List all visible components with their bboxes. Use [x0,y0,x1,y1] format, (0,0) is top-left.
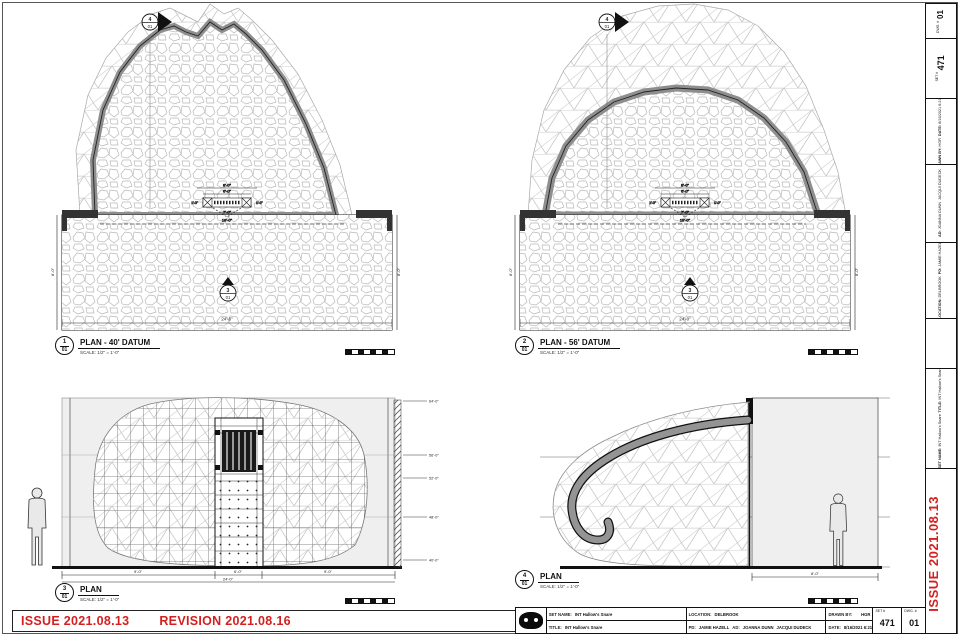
svg-text:01: 01 [148,24,153,29]
view-bubble-1: 1 01 [55,336,74,355]
view-title: PLAN - 56' DATUM [538,336,620,349]
plan-40-datum-drawing: 8'-0" 6'-0" 1'-0" 1'-0" 7'-0" 18'-0" 3 0… [45,5,405,350]
set-number-cell: SET # 471 [872,608,901,633]
graphic-scale-bar [345,598,395,604]
view-scale: SCALE: 1/2" = 1'-0" [538,583,579,589]
view-bubble-3: 3 01 [55,583,74,602]
ground-line [52,566,402,569]
view-bubble-4: 4 01 [515,570,534,589]
dwg-number-cell: DWG. # 01 [901,608,926,633]
title-value: INT Hallow's Snare [565,625,603,630]
view-scale: SCALE: 1/2" = 1'-0" [78,596,119,602]
svg-text:56'-0": 56'-0" [429,454,439,458]
svg-text:9'-0": 9'-0" [324,569,333,574]
view-label-1: 1 01 PLAN - 40' DATUM SCALE: 1/2" = 1'-0… [55,336,160,355]
dim-door-mid: 6'-0" [223,189,232,194]
dim-door-side-r: 1'-0" [714,201,722,205]
dim-door-side-r: 1'-0" [256,201,264,205]
svg-text:4: 4 [606,17,609,23]
side-dwg-cell: DWG. # 01 [926,4,956,39]
pd-value: JAMIE HAZELL [699,625,729,630]
dim-left: 8'-0" [508,267,513,276]
drawn-by-cell: DRAWN BY: HGR DATE: 8/16/2021 6:21:13 [825,608,872,633]
view-bubble-2: 2 01 [515,336,534,355]
view-label-3: 3 01 PLAN SCALE: 1/2" = 1'-0" [55,583,119,602]
location-cell: LOCATION: DELBROOK PD: JAMIE HAZELL AD: … [686,608,826,633]
svg-text:3: 3 [689,288,692,294]
title-block-side: DWG. # 01 SET # 471 DRAWN BY: HGR DATE: … [925,3,957,634]
title-block-bottom: SET NAME: INT Hallow's Snare TITLE: INT … [515,607,927,634]
drawn-by-value: HGR [861,612,870,617]
view-scale: SCALE: 1/2" = 1'-0" [78,349,160,355]
svg-text:4: 4 [149,17,152,23]
side-issue-cell: ISSUE 2021.08.13 [926,468,956,635]
dims-elevation: 9'-0" 6'-0" 9'-0" 24'-0" [62,569,395,582]
set-name-value: INT Hallow's Snare [575,612,613,617]
dim-overall: 24'-0" [221,317,233,322]
svg-text:3: 3 [227,288,230,294]
dims-section: 8'-0" [752,571,878,581]
gate-tower [215,418,263,568]
dim-mid: 18'-0" [222,218,233,223]
side-empty-cell [926,318,956,369]
issue-revision-bar: ISSUE 2021.08.13 REVISION 2021.08.16 [12,610,520,632]
revision-text: REVISION 2021.08.16 [159,614,290,628]
view-title: PLAN [538,570,579,583]
svg-text:24'-0": 24'-0" [223,577,234,582]
room-interior [746,398,878,568]
dim-left: 8'-0" [50,267,55,276]
svg-text:01: 01 [688,295,693,300]
view-scale: SCALE: 1/2" = 1'-0" [538,349,620,355]
date-value: 8/16/2021 6:21:13 [844,625,873,630]
svg-text:52'-0": 52'-0" [429,477,439,481]
view-label-4: 4 01 PLAN SCALE: 1/2" = 1'-0" [515,570,579,589]
set-number-value: 471 [873,613,901,633]
dim-door-low: 7'-0" [223,210,232,215]
set-name-cell: SET NAME: INT Hallow's Snare TITLE: INT … [546,608,686,633]
side-section-drawing: 8'-0" [505,388,905,592]
side-set-cell: SET # 471 [926,38,956,99]
dim-door-low: 7'-0" [681,210,690,215]
dim-overall: 24'-0" [679,317,691,322]
side-drawn-cell: DRAWN BY: HGR DATE: 8/16/2021 6:21:13 [926,98,956,165]
dim-mid: 18'-0" [680,218,691,223]
svg-text:64'-0": 64'-0" [429,400,439,404]
rock-profile [553,402,750,566]
svg-text:8'-0": 8'-0" [811,571,820,576]
dwg-number-value: 01 [902,613,926,633]
front-elevation-drawing: 64'-0" 56'-0" 52'-0" 48'-0" 40'-0" 9'-0"… [15,390,445,592]
issue-text: ISSUE 2021.08.13 [21,614,129,628]
plan-56-datum-drawing: 8'-0" 6'-0" 1'-0" 1'-0" 7'-0" 18'-0" 3 0… [505,5,875,350]
dim-door-top: 8'-0" [223,183,232,188]
side-dwg-value: 01 [936,10,947,19]
elevation-datums: 64'-0" 56'-0" 52'-0" 48'-0" 40'-0" [403,400,439,563]
human-figure-left [28,488,46,565]
dim-door-side-l: 1'-0" [191,201,199,205]
view-title: PLAN [78,583,119,596]
svg-text:01: 01 [226,295,231,300]
ad1-value: JOANNA DUNN [743,625,774,630]
svg-text:6'-0": 6'-0" [234,569,243,574]
rock-mound-plan40 [76,4,352,215]
side-issue-text: ISSUE 2021.08.13 [926,496,941,612]
ground-line [560,566,882,569]
svg-text:9'-0": 9'-0" [134,569,143,574]
logo-cell [516,608,546,633]
svg-text:40'-0": 40'-0" [429,559,439,563]
dim-right: 8'-0" [854,267,859,276]
svg-text:48'-0": 48'-0" [429,516,439,520]
side-name-cell: SET NAME: INT Hallow's Snare TITLE: INT … [926,368,956,469]
svg-text:01: 01 [605,24,610,29]
view-title: PLAN - 40' DATUM [78,336,160,349]
dim-door-top: 8'-0" [681,183,690,188]
dim-door-side-l: 1'-0" [649,201,657,205]
drawing-sheet: 8'-0" 6'-0" 1'-0" 1'-0" 7'-0" 18'-0" 3 0… [0,0,960,636]
graphic-scale-bar [808,349,858,355]
dim-door-mid: 6'-0" [681,189,690,194]
graphic-scale-bar [345,349,395,355]
location-value: DELBROOK [715,612,739,617]
side-set-value: 471 [935,55,947,70]
view-label-2: 2 01 PLAN - 56' DATUM SCALE: 1/2" = 1'-0… [515,336,620,355]
section-wall-hatch [394,400,401,567]
graphic-scale-bar [808,598,858,604]
side-location-cell: LOCATION: DELBROOK PD: JAMIE HAZELL [926,242,956,319]
side-ad-cell: AD: JOANNA DUNN JACQUI DUDECK [926,164,956,243]
dim-right: 8'-0" [396,267,401,276]
studio-logo-icon [519,612,543,629]
ad2-value: JACQUI DUDECK [777,625,812,630]
